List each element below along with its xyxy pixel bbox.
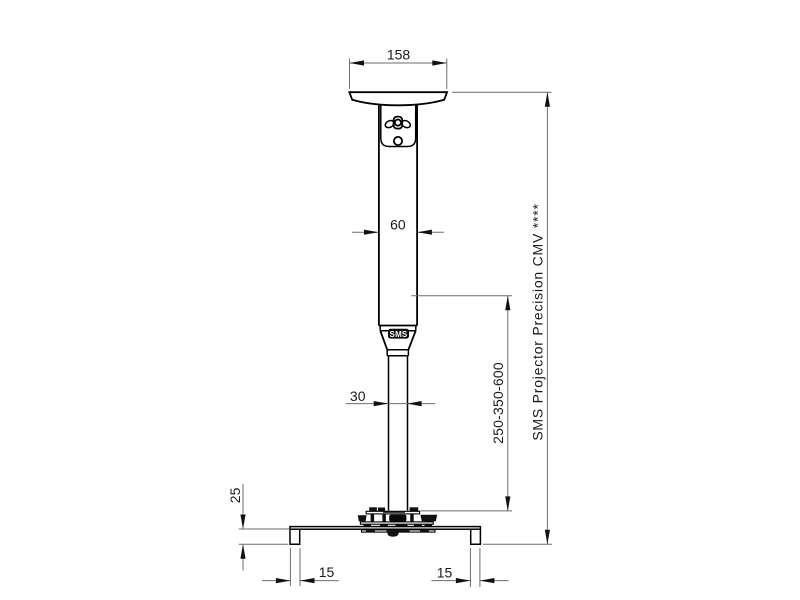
svg-text:250-350-600: 250-350-600 <box>490 362 506 444</box>
svg-text:25: 25 <box>227 487 243 503</box>
svg-text:15: 15 <box>437 565 453 581</box>
svg-text:15: 15 <box>319 564 335 580</box>
svg-text:SMS: SMS <box>390 330 408 339</box>
svg-text:SMS Projector Precision CMV **: SMS Projector Precision CMV **** <box>530 203 546 440</box>
svg-text:60: 60 <box>390 217 406 233</box>
svg-text:158: 158 <box>387 47 411 63</box>
svg-text:30: 30 <box>350 388 366 404</box>
